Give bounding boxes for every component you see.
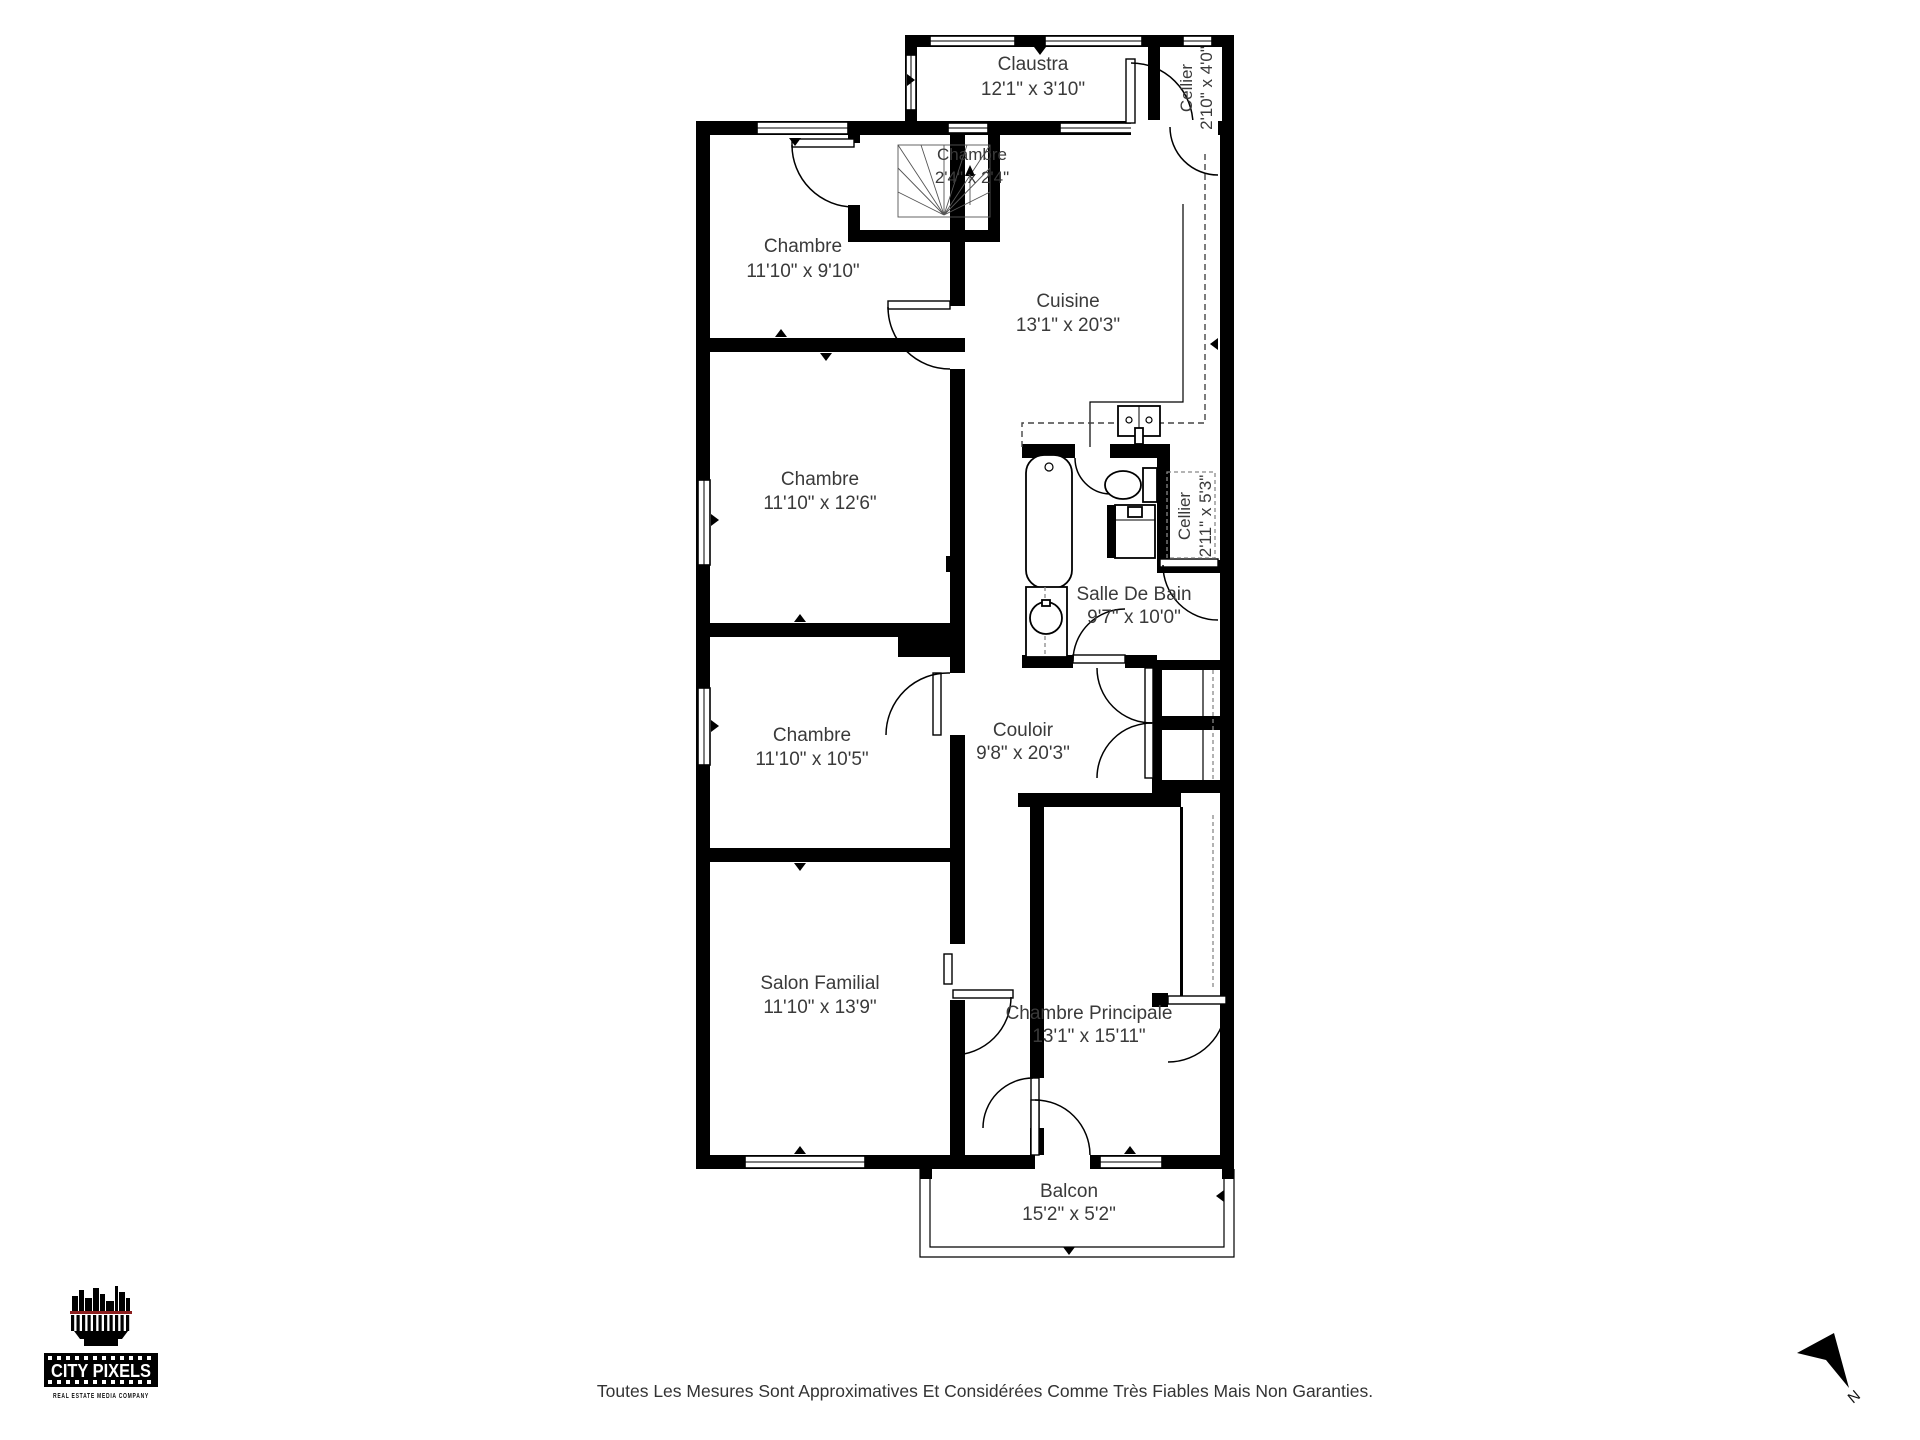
room-label-salon: Salon Familial [760,973,879,994]
room-label-cellier-mid: Cellier [1175,492,1194,541]
window [1183,36,1212,46]
room-label-chambre-principale: Chambre Principale [1006,1003,1173,1024]
room-dims-stair-chambre: 2'4" x 2'4" [935,168,1009,187]
window [757,122,848,134]
closet-double-door [1097,668,1153,778]
window [948,123,988,133]
room-dims-salon: 11'10" x 13'9" [763,997,876,1018]
room-label-stair-chambre: Chambre [937,145,1007,164]
bathtub [1026,455,1072,588]
door [1168,996,1226,1062]
room-dims-chambre1: 11'10" x 9'10" [746,261,859,282]
room-dims-claustra: 12'1" x 3'10" [981,79,1085,100]
room-dims-chambre2: 11'10" x 12'6" [763,493,876,514]
room-dims-cellier-mid: 2'11" x 5'3" [1196,475,1215,558]
room-label-cuisine: Cuisine [1036,291,1099,312]
room-dims-chambre3: 11'10" x 10'5" [755,749,868,770]
window [1045,36,1142,46]
window [1060,123,1143,133]
measurements-disclaimer: Toutes Les Mesures Sont Approximatives E… [0,1381,1920,1402]
room-dims-balcon: 15'2" x 5'2" [1022,1204,1116,1225]
logo-lens-skyline-icon [70,1286,132,1346]
room-dims-salle-de-bain: 9'7" x 10'0" [1087,607,1181,628]
room-label-salle-de-bain: Salle De Bain [1076,584,1191,605]
room-label-chambre3: Chambre [773,725,851,746]
direction-markers [711,47,1224,1255]
door [886,673,950,735]
window [930,36,1015,46]
logo-title: CITY PIXELS [51,1361,151,1381]
room-dims-couloir: 9'8" x 20'3" [976,743,1070,764]
window [745,1156,865,1168]
bathroom-vanity [1026,587,1067,657]
room-label-balcon: Balcon [1040,1181,1098,1202]
room-label-chambre2: Chambre [781,469,859,490]
room-label-cellier-top: Cellier [1177,64,1196,113]
door [792,139,854,207]
room-dims-cuisine: 13'1" x 20'3" [1016,315,1120,336]
floorplan-drawing: Claustra 12'1" x 3'10" Cellier 2'10" x 4… [0,0,1920,1440]
window [1100,1156,1162,1168]
door [888,301,950,369]
room-label-chambre1: Chambre [764,236,842,257]
window [698,480,710,565]
room-label-claustra: Claustra [998,54,1069,75]
floorplan-page: Claustra 12'1" x 3'10" Cellier 2'10" x 4… [0,0,1920,1440]
window [698,688,710,765]
kitchen-sink [1118,406,1160,444]
shower [1107,505,1155,558]
room-dims-cellier-top: 2'10" x 4'0" [1197,46,1216,130]
toilet [1105,468,1157,502]
room-dims-chambre-principale: 13'1" x 15'11" [1032,1026,1145,1047]
room-label-couloir: Couloir [993,720,1054,741]
